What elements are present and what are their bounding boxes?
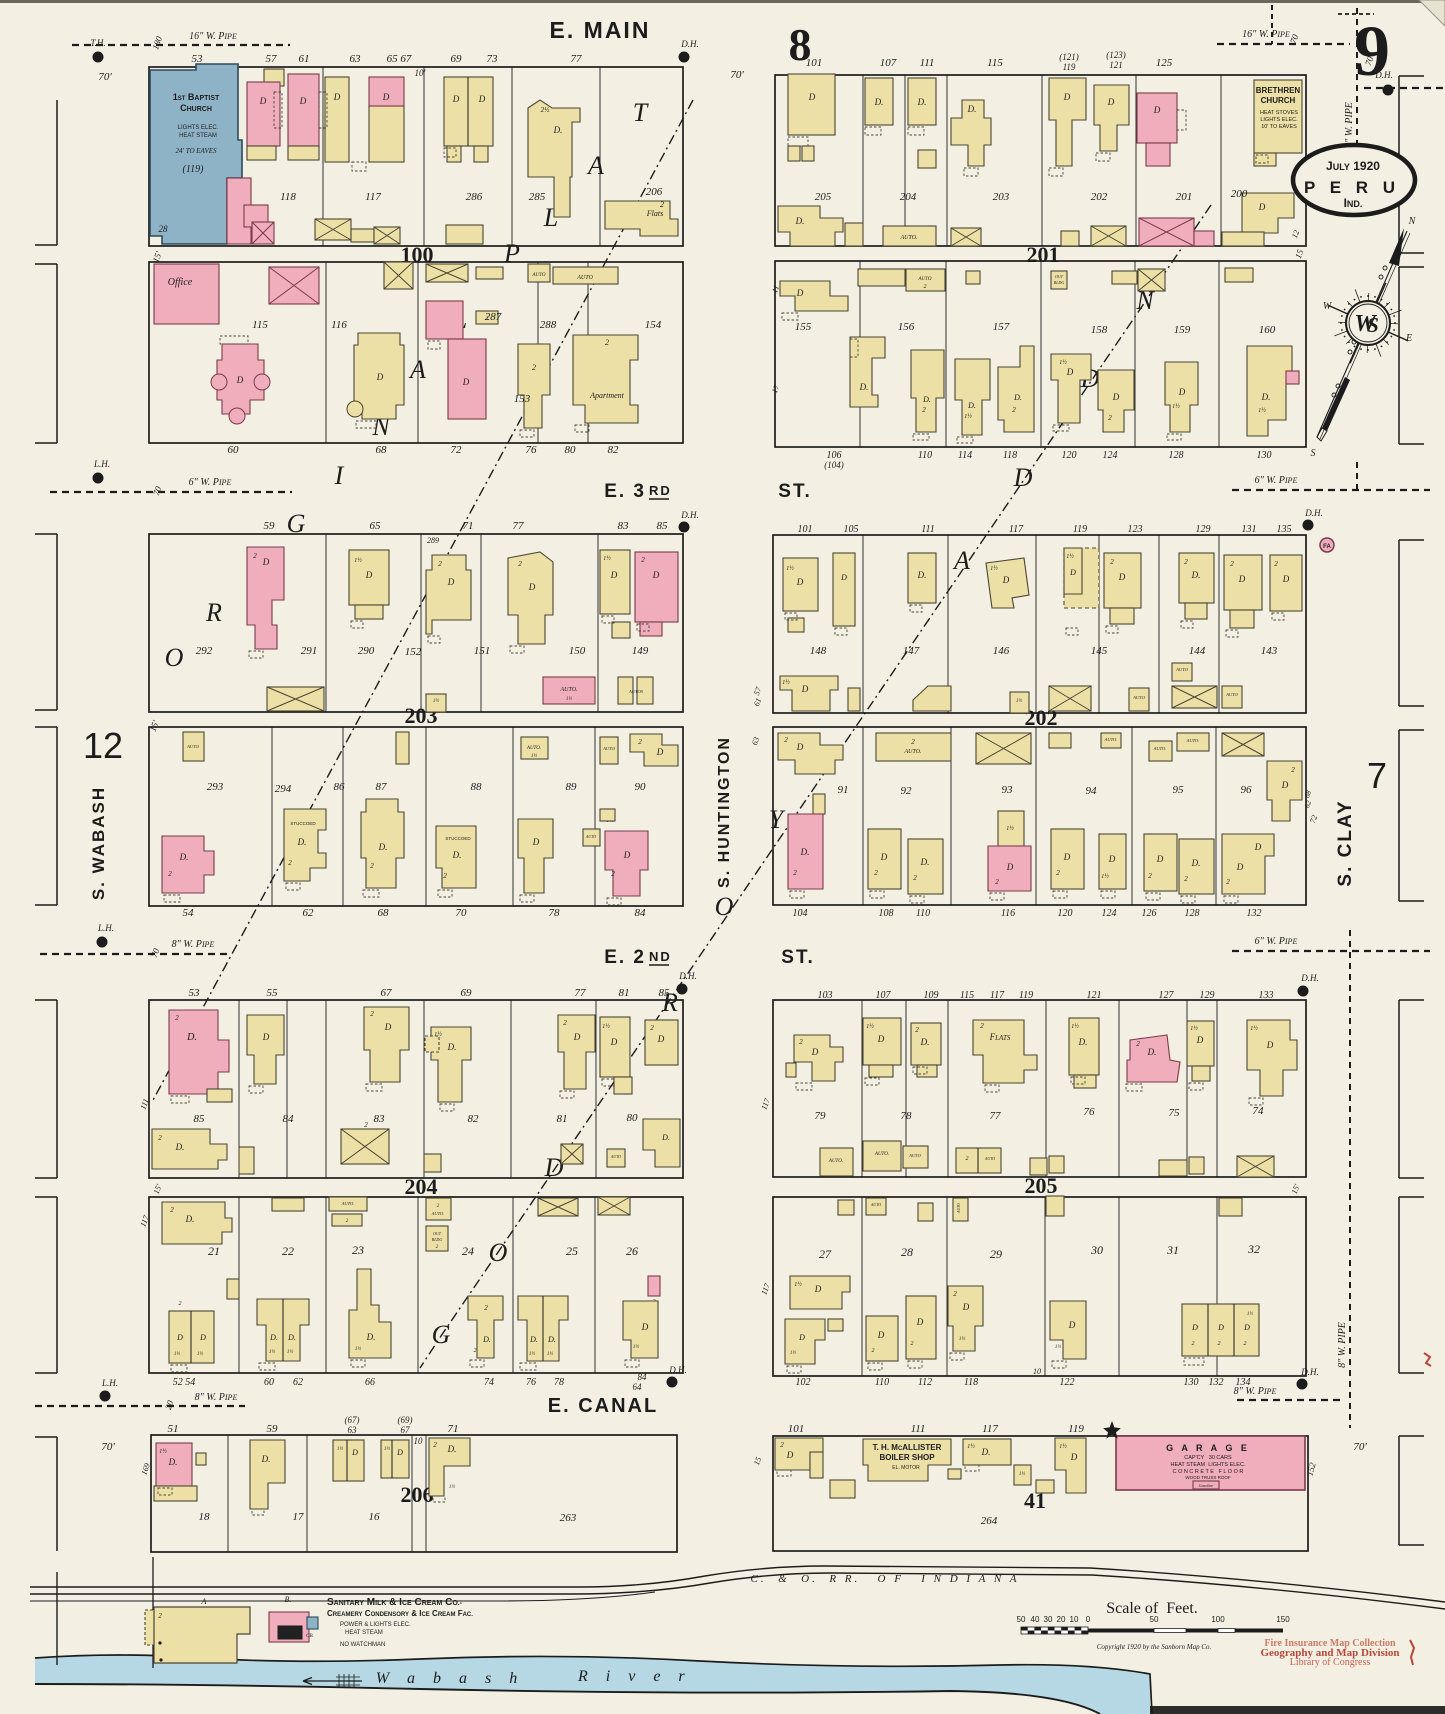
svg-text:POWER & LIGHTS ELEC.: POWER & LIGHTS ELEC. — [340, 1622, 411, 1628]
svg-text:65: 65 — [370, 520, 382, 532]
svg-text:288: 288 — [540, 319, 557, 331]
svg-text:54: 54 — [183, 907, 195, 919]
svg-text:BOILER SHOP: BOILER SHOP — [879, 1453, 935, 1462]
svg-text:130: 130 — [1257, 450, 1272, 461]
svg-text:D: D — [1013, 463, 1033, 492]
svg-text:O: O — [715, 892, 734, 921]
svg-text:S: S — [1311, 448, 1316, 459]
svg-text:101: 101 — [806, 57, 823, 69]
svg-text:118: 118 — [1003, 450, 1017, 461]
svg-text:78: 78 — [901, 1110, 913, 1122]
svg-text:28: 28 — [901, 1245, 913, 1259]
svg-text:L.H.: L.H. — [93, 459, 110, 469]
svg-text:Apartment: Apartment — [589, 391, 625, 400]
svg-text:AUTO: AUTO — [186, 744, 199, 749]
svg-text:50: 50 — [1017, 1615, 1026, 1624]
svg-text:84: 84 — [635, 907, 647, 919]
svg-text:152: 152 — [405, 646, 422, 658]
svg-text:1½: 1½ — [1019, 1472, 1026, 1477]
svg-text:110: 110 — [918, 450, 932, 461]
svg-text:1½: 1½ — [1066, 553, 1074, 560]
svg-text:129: 129 — [1200, 990, 1215, 1001]
svg-text:61: 61 — [299, 53, 310, 65]
svg-text:D.H.: D.H. — [678, 971, 697, 981]
svg-text:D: D — [877, 1330, 885, 1340]
svg-text:128: 128 — [1169, 450, 1184, 461]
svg-text:119: 119 — [1068, 1423, 1084, 1435]
svg-text:D.: D. — [917, 97, 927, 107]
svg-text:E. 2: E. 2 — [604, 947, 646, 968]
svg-text:S. HUNTINGTON: S. HUNTINGTON — [716, 736, 733, 888]
svg-text:D: D — [259, 96, 267, 106]
svg-text:1½: 1½ — [866, 1023, 874, 1030]
svg-text:128: 128 — [1185, 908, 1200, 919]
svg-text:AUTO.: AUTO. — [526, 746, 541, 751]
svg-text:77: 77 — [990, 1110, 1002, 1122]
svg-text:69: 69 — [451, 53, 463, 65]
svg-text:D.: D. — [287, 1333, 296, 1342]
svg-text:D: D — [1178, 387, 1186, 397]
svg-text:D: D — [786, 1450, 794, 1460]
svg-text:146: 146 — [993, 645, 1010, 657]
svg-text:JULY 1920: JULY 1920 — [1326, 159, 1380, 173]
svg-text:2: 2 — [911, 1341, 914, 1347]
svg-text:D: D — [462, 377, 470, 387]
svg-text:D.H.: D.H. — [680, 510, 699, 520]
svg-text:E. CANAL: E. CANAL — [548, 1395, 658, 1417]
svg-text:2: 2 — [1218, 1341, 1221, 1347]
svg-text:S: S — [1367, 313, 1379, 337]
svg-text:1½: 1½ — [786, 565, 794, 572]
svg-text:1½: 1½ — [174, 1352, 181, 1357]
svg-text:93: 93 — [1002, 784, 1014, 796]
svg-text:D: D — [262, 1032, 270, 1042]
svg-text:27: 27 — [819, 1247, 832, 1261]
svg-text:D: D — [1156, 854, 1164, 864]
svg-text:2: 2 — [1184, 558, 1188, 566]
svg-text:D: D — [1069, 568, 1076, 577]
svg-text:D.: D. — [297, 837, 307, 847]
svg-text:26: 26 — [626, 1244, 638, 1258]
svg-text:HEAT STEAM LIGHTS ELEC.: HEAT STEAM LIGHTS ELEC. — [1171, 1462, 1246, 1468]
svg-text:82: 82 — [608, 444, 620, 456]
svg-text:ST.: ST. — [778, 481, 811, 502]
svg-text:C. & O. R R. O F I N D: C. & O. R R. O F I N D I A N A — [751, 1573, 1020, 1585]
svg-text:D.: D. — [661, 1133, 670, 1142]
svg-text:E. 3: E. 3 — [604, 481, 646, 502]
svg-text:2: 2 — [995, 878, 999, 886]
svg-text:127: 127 — [1159, 990, 1175, 1001]
svg-text:60: 60 — [264, 1377, 274, 1388]
svg-text:80: 80 — [565, 444, 577, 456]
svg-text:78: 78 — [554, 1377, 564, 1388]
svg-text:D.: D. — [553, 125, 563, 135]
svg-text:Gasoline: Gasoline — [1199, 1483, 1214, 1488]
svg-text:P E R U: P E R U — [1304, 178, 1400, 197]
svg-text:16: 16 — [369, 1511, 381, 1523]
svg-text:2: 2 — [563, 1019, 567, 1027]
svg-text:118: 118 — [964, 1377, 978, 1388]
svg-text:AUTO: AUTO — [585, 834, 596, 839]
svg-text:10: 10 — [1033, 1367, 1041, 1376]
svg-text:79: 79 — [815, 1110, 827, 1122]
svg-text:12: 12 — [83, 725, 123, 766]
svg-text:88: 88 — [471, 781, 483, 793]
svg-text:124: 124 — [1103, 450, 1118, 461]
svg-text:84: 84 — [283, 1113, 295, 1125]
svg-text:D: D — [1002, 575, 1010, 585]
svg-text:101: 101 — [798, 524, 813, 535]
svg-text:D.: D. — [981, 1447, 991, 1457]
svg-text:157: 157 — [993, 321, 1010, 333]
svg-text:62: 62 — [303, 907, 315, 919]
svg-text:D: D — [376, 372, 384, 382]
svg-text:145: 145 — [1091, 645, 1108, 657]
svg-text:1½: 1½ — [566, 697, 573, 702]
svg-text:D: D — [916, 1317, 924, 1327]
svg-text:60: 60 — [228, 444, 240, 456]
svg-text:76: 76 — [526, 444, 538, 456]
svg-text:70': 70' — [730, 69, 744, 81]
svg-text:2: 2 — [611, 870, 615, 878]
svg-text:143: 143 — [1261, 645, 1278, 657]
svg-text:AUTO.: AUTO. — [899, 235, 917, 241]
svg-text:2: 2 — [1291, 766, 1295, 774]
svg-text:62: 62 — [293, 1377, 303, 1388]
svg-text:D: D — [1243, 1323, 1250, 1332]
svg-text:D.: D. — [967, 104, 977, 114]
svg-text:287: 287 — [485, 311, 502, 323]
svg-text:(121): (121) — [1059, 52, 1079, 62]
svg-text:D: D — [447, 577, 455, 587]
svg-text:22: 22 — [282, 1244, 294, 1258]
svg-text:59: 59 — [264, 520, 276, 532]
svg-text:D: D — [333, 92, 341, 102]
svg-text:103: 103 — [818, 990, 833, 1001]
svg-text:EL. MOTOR: EL. MOTOR — [892, 1465, 920, 1471]
svg-text:BLDG: BLDG — [432, 1237, 443, 1242]
svg-text:1½: 1½ — [354, 557, 362, 564]
svg-text:117: 117 — [982, 1423, 998, 1435]
svg-text:57: 57 — [266, 53, 278, 65]
svg-text:2: 2 — [364, 1121, 368, 1129]
svg-text:204: 204 — [900, 191, 917, 203]
svg-text:23: 23 — [352, 1243, 364, 1257]
svg-text:A: A — [201, 1597, 207, 1606]
svg-text:290: 290 — [358, 645, 375, 657]
svg-text:D: D — [623, 850, 631, 860]
svg-text:28: 28 — [159, 224, 169, 234]
svg-text:CB.: CB. — [306, 1634, 314, 1639]
svg-text:1½: 1½ — [1190, 1025, 1198, 1032]
svg-text:65 67: 65 67 — [387, 53, 412, 65]
svg-text:Y: Y — [769, 805, 786, 834]
svg-text:1½: 1½ — [269, 1350, 276, 1355]
svg-text:294: 294 — [275, 783, 292, 795]
svg-text:1½: 1½ — [1006, 825, 1014, 832]
svg-text:D.: D. — [452, 850, 462, 860]
svg-text:110: 110 — [916, 908, 930, 919]
svg-text:2: 2 — [370, 862, 374, 870]
svg-text:51: 51 — [168, 1423, 179, 1435]
svg-text:D.: D. — [447, 1444, 457, 1454]
svg-text:2: 2 — [1274, 560, 1278, 568]
svg-text:1½: 1½ — [1071, 1023, 1079, 1030]
svg-text:77: 77 — [513, 520, 525, 532]
svg-text:1½: 1½ — [959, 1337, 966, 1342]
svg-text:75: 75 — [1169, 1107, 1181, 1119]
svg-text:111: 111 — [911, 1423, 926, 1435]
svg-text:116: 116 — [331, 319, 347, 331]
svg-text:D: D — [1107, 97, 1115, 107]
svg-text:STUCCOED: STUCCOED — [445, 836, 471, 841]
svg-text:95: 95 — [1173, 784, 1185, 796]
svg-text:D.: D. — [1147, 1047, 1157, 1057]
svg-text:FLATS: FLATS — [989, 1032, 1011, 1042]
svg-text:D: D — [478, 94, 486, 104]
svg-text:1½: 1½ — [449, 1485, 456, 1490]
svg-text:L.H.: L.H. — [101, 1378, 118, 1388]
svg-text:1½: 1½ — [337, 1447, 344, 1452]
svg-text:D.: D. — [179, 852, 189, 862]
svg-text:D: D — [573, 1032, 581, 1042]
svg-text:D: D — [1108, 854, 1116, 864]
svg-text:293: 293 — [207, 781, 224, 793]
svg-text:2: 2 — [1012, 406, 1016, 414]
svg-text:2: 2 — [924, 284, 927, 290]
svg-text:WOOD TRUSS ROOF: WOOD TRUSS ROOF — [1185, 1475, 1230, 1480]
svg-text:HEAT STEAM: HEAT STEAM — [179, 133, 217, 139]
svg-text:S. CLAY: S. CLAY — [1335, 799, 1356, 886]
svg-text:2: 2 — [1108, 414, 1112, 422]
svg-text:16" W. PIPE: 16" W. PIPE — [1242, 29, 1290, 40]
svg-text:132: 132 — [1247, 908, 1262, 919]
svg-text:2: 2 — [1230, 560, 1234, 568]
svg-text:AUTO: AUTO — [576, 275, 593, 281]
svg-text:144: 144 — [1189, 645, 1206, 657]
svg-text:D.H.: D.H. — [1304, 508, 1323, 518]
svg-text:2: 2 — [605, 338, 609, 347]
svg-text:151: 151 — [474, 645, 491, 657]
svg-text:6" W. PIPE: 6" W. PIPE — [1255, 936, 1298, 947]
svg-text:2: 2 — [793, 869, 797, 877]
svg-text:D: D — [351, 1448, 358, 1457]
svg-text:30: 30 — [1044, 1615, 1053, 1624]
svg-text:117: 117 — [1009, 524, 1024, 535]
svg-text:160: 160 — [1259, 324, 1276, 336]
svg-text:D: D — [840, 573, 847, 582]
svg-text:AUTO.: AUTO. — [431, 1211, 445, 1216]
svg-text:AUTO: AUTO — [908, 1153, 921, 1158]
svg-text:2: 2 — [1148, 872, 1152, 880]
svg-text:158: 158 — [1091, 324, 1108, 336]
svg-text:59: 59 — [267, 1423, 279, 1435]
svg-text:D: D — [610, 1037, 618, 1047]
svg-text:D: D — [1236, 862, 1244, 872]
svg-text:AUTO: AUTO — [957, 1203, 961, 1214]
svg-text:(123): (123) — [1106, 50, 1126, 60]
svg-text:D: D — [199, 1333, 206, 1342]
svg-text:2: 2 — [158, 1134, 162, 1142]
svg-text:32: 32 — [1247, 1242, 1260, 1256]
svg-text:117: 117 — [365, 191, 381, 203]
svg-text:D: D — [1254, 842, 1262, 852]
svg-text:10' TO EAVES: 10' TO EAVES — [1261, 124, 1297, 130]
svg-text:120: 120 — [1058, 908, 1073, 919]
svg-text:120: 120 — [1062, 450, 1077, 461]
svg-text:D: D — [1118, 572, 1126, 582]
svg-text:21: 21 — [208, 1244, 220, 1258]
svg-text:64: 64 — [633, 1382, 643, 1392]
svg-text:D: D — [384, 1022, 392, 1032]
svg-text:2: 2 — [1136, 1040, 1140, 1048]
svg-text:D: D — [176, 1333, 183, 1342]
svg-text:78: 78 — [549, 907, 561, 919]
svg-text:1½: 1½ — [967, 1443, 975, 1450]
svg-text:6" W. PIPE: 6" W. PIPE — [189, 477, 232, 488]
svg-text:91: 91 — [838, 784, 849, 796]
svg-text:Copyright 1920 by the Sanborn: Copyright 1920 by the Sanborn Map Co. — [1097, 1643, 1212, 1651]
svg-text:D: D — [452, 94, 460, 104]
svg-text:76: 76 — [1084, 1106, 1096, 1118]
svg-text:E. MAIN: E. MAIN — [550, 17, 651, 43]
svg-text:AUTO.: AUTO. — [828, 1159, 843, 1164]
svg-text:205: 205 — [815, 191, 832, 203]
svg-text:155: 155 — [795, 321, 812, 333]
svg-text:D.: D. — [917, 570, 927, 580]
svg-text:70': 70' — [1353, 1441, 1367, 1453]
svg-text:25: 25 — [566, 1244, 578, 1258]
svg-text:70': 70' — [101, 1441, 115, 1453]
svg-text:R i v e r: R i v e r — [577, 1668, 692, 1685]
svg-text:D.: D. — [547, 1335, 556, 1344]
svg-text:G: G — [432, 1320, 451, 1349]
svg-text:D: D — [814, 1284, 822, 1294]
svg-text:1½: 1½ — [1055, 1345, 1062, 1350]
svg-text:2: 2 — [915, 1026, 919, 1034]
svg-text:108: 108 — [879, 908, 894, 919]
svg-text:AUTO.: AUTO. — [1153, 746, 1167, 751]
svg-text:1½: 1½ — [1250, 1025, 1258, 1032]
svg-text:150: 150 — [1276, 1615, 1290, 1624]
svg-text:D.: D. — [529, 1335, 538, 1344]
svg-text:86: 86 — [334, 781, 346, 793]
svg-text:D: D — [262, 557, 270, 567]
svg-text:8" W. PIPE: 8" W. PIPE — [172, 939, 215, 950]
svg-text:100: 100 — [1211, 1615, 1225, 1624]
svg-text:104: 104 — [793, 908, 808, 919]
svg-text:71: 71 — [463, 520, 474, 532]
svg-text:ST.: ST. — [781, 947, 814, 968]
svg-text:153: 153 — [514, 393, 531, 405]
svg-text:AUTO: AUTO — [1175, 667, 1188, 672]
svg-text:ND: ND — [649, 949, 672, 964]
svg-text:77: 77 — [571, 53, 583, 65]
svg-text:LIGHTS ELEC.: LIGHTS ELEC. — [1260, 117, 1298, 123]
svg-text:D.: D. — [447, 1042, 457, 1052]
svg-text:8" W. PIPE: 8" W. PIPE — [1337, 1322, 1348, 1368]
svg-text:1½: 1½ — [1172, 403, 1180, 410]
svg-text:HEAT STEAM: HEAT STEAM — [345, 1630, 383, 1636]
svg-text:D: D — [798, 1333, 805, 1342]
svg-text:63: 63 — [348, 1425, 358, 1435]
svg-text:133: 133 — [1259, 990, 1274, 1001]
svg-text:D: D — [299, 96, 307, 106]
svg-text:10: 10 — [414, 1436, 424, 1446]
svg-text:D.: D. — [378, 842, 388, 852]
svg-text:1½: 1½ — [633, 1345, 640, 1350]
svg-text:102: 102 — [796, 1377, 811, 1388]
svg-text:73: 73 — [487, 53, 499, 65]
svg-text:AUTO: AUTO — [918, 277, 932, 282]
svg-text:2: 2 — [874, 869, 878, 877]
svg-text:AUTO.: AUTO. — [1186, 738, 1200, 743]
svg-text:D: D — [396, 1448, 403, 1457]
svg-text:AUTO.: AUTO. — [903, 749, 921, 755]
svg-text:0: 0 — [1086, 1615, 1091, 1624]
svg-text:D.: D. — [186, 1032, 197, 1043]
svg-text:AUTO.: AUTO. — [341, 1201, 355, 1206]
svg-text:A: A — [586, 151, 604, 180]
svg-text:50: 50 — [1150, 1615, 1159, 1624]
svg-text:D: D — [1153, 105, 1161, 115]
svg-text:2: 2 — [1226, 878, 1230, 886]
svg-text:D: D — [1006, 862, 1014, 872]
svg-text:1½: 1½ — [433, 699, 440, 704]
svg-text:D: D — [1066, 367, 1074, 377]
svg-text:70': 70' — [98, 71, 112, 83]
svg-text:94: 94 — [1086, 785, 1098, 797]
svg-text:2: 2 — [438, 560, 442, 568]
svg-text:D: D — [532, 837, 540, 847]
svg-text:150: 150 — [569, 645, 586, 657]
svg-text:FA: FA — [1323, 544, 1331, 550]
svg-text:1½: 1½ — [529, 1352, 536, 1357]
svg-text:D: D — [796, 742, 804, 752]
svg-text:D: D — [796, 577, 804, 587]
svg-text:D.: D. — [800, 847, 810, 857]
svg-text:D: D — [365, 570, 373, 580]
svg-text:81: 81 — [557, 1113, 568, 1125]
svg-text:D: D — [1068, 1320, 1076, 1330]
svg-text:1½: 1½ — [794, 1281, 802, 1288]
svg-text:2½: 2½ — [541, 106, 551, 114]
svg-text:8" W. PIPE: 8" W. PIPE — [195, 1392, 238, 1403]
svg-text:2: 2 — [484, 1304, 488, 1312]
svg-text:200: 200 — [1231, 188, 1248, 200]
svg-text:D: D — [877, 1034, 885, 1044]
svg-text:85: 85 — [194, 1113, 206, 1125]
svg-text:2: 2 — [253, 552, 257, 560]
svg-text:10': 10' — [415, 68, 427, 78]
svg-text:D.: D. — [482, 1335, 491, 1344]
svg-text:1½: 1½ — [1059, 359, 1067, 366]
svg-text:2: 2 — [872, 1348, 875, 1354]
svg-text:Office: Office — [168, 277, 193, 288]
svg-text:D.: D. — [922, 395, 931, 404]
svg-text:D: D — [652, 570, 660, 580]
svg-text:76: 76 — [526, 1377, 536, 1388]
svg-text:7: 7 — [1367, 755, 1387, 796]
svg-text:111: 111 — [920, 57, 935, 69]
svg-text:2: 2 — [922, 406, 926, 414]
svg-text:116: 116 — [1001, 908, 1015, 919]
svg-text:16" W. PIPE: 16" W. PIPE — [189, 31, 237, 42]
svg-text:(67): (67) — [345, 1415, 360, 1425]
svg-text:286: 286 — [466, 191, 483, 203]
svg-text:OUT: OUT — [1055, 274, 1064, 279]
svg-text:135: 135 — [1277, 524, 1292, 535]
